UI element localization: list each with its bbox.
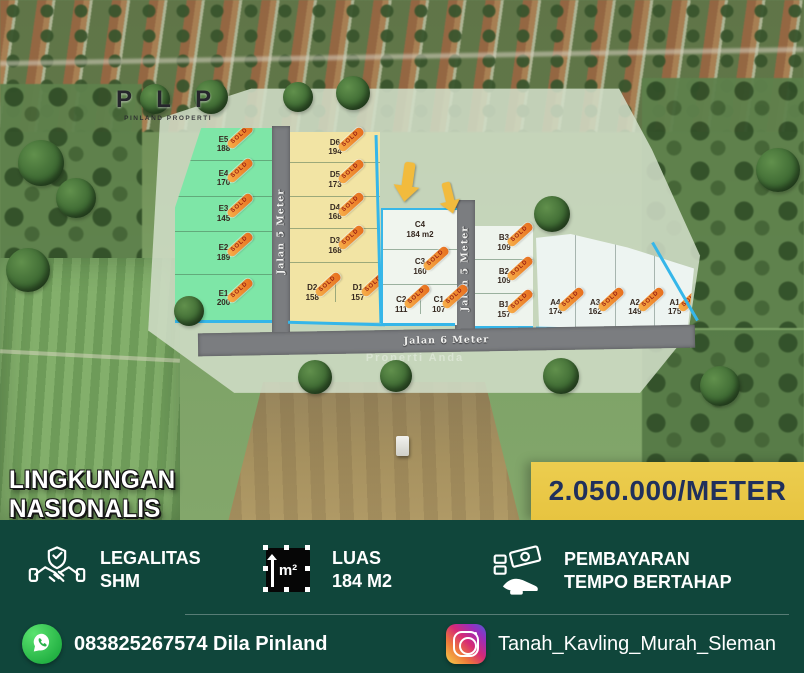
instagram-contact: Tanah_Kavling_Murah_Sleman	[446, 624, 776, 664]
feature-line: LUAS	[332, 547, 392, 570]
sold-badge: SOLD	[337, 224, 365, 251]
plot-row-C2-C1: C2 111 SOLD C1 107 SOLD	[383, 285, 457, 325]
plot-D5: D5 173 SOLD	[290, 163, 380, 196]
plot-D1: D1 157 SOLD	[336, 283, 381, 302]
plot-A4: A4 174 SOLD	[536, 234, 576, 330]
headline: LINGKUNGAN NASIONALIS	[9, 466, 329, 524]
tree	[700, 366, 740, 406]
feature-line: TEMPO BERTAHAP	[564, 571, 732, 594]
feature-line: SHM	[100, 570, 201, 593]
plot-D2: D2 158 SOLD	[290, 283, 336, 302]
company-logo: P L P PINLAND PROPERTI	[116, 86, 220, 122]
whatsapp-number: 083825267574 Dila Pinland	[74, 633, 328, 656]
feature-luas: m² LUAS 184 M2	[262, 544, 392, 596]
sold-badge: SOLD	[225, 231, 253, 258]
plot-B2: B2 109 SOLD	[475, 260, 533, 293]
real-estate-flyer: Jalan 5 Meter Jalan 5 Meter E5 188 SOLD …	[0, 0, 804, 673]
logo-subtitle: PINLAND PROPERTI	[116, 115, 220, 122]
road-vertical-right: Jalan 5 Meter	[455, 200, 475, 336]
instagram-icon	[446, 624, 486, 664]
watermark: Properti Anda	[300, 352, 530, 364]
feature-line: 184 M2	[332, 570, 392, 593]
plot-row-D2-D1: D2 158 SOLD D1 157 SOLD	[290, 263, 380, 322]
tree	[6, 248, 50, 292]
price-banner: 2.050.000/METER	[531, 462, 804, 520]
plot-A3: A3 162 SOLD	[576, 234, 616, 330]
tree	[298, 360, 332, 394]
blue-boundary	[381, 323, 455, 326]
feature-pembayaran: PEMBAYARAN TEMPO BERTAHAP	[492, 544, 732, 598]
plot-group-b: B3 109 SOLD B2 109 SOLD B1 157 SOLD	[475, 226, 533, 326]
instagram-handle: Tanah_Kavling_Murah_Sleman	[498, 633, 776, 656]
plot-B1: B1 157 SOLD	[475, 294, 533, 326]
plot-D4: D4 168 SOLD	[290, 197, 380, 229]
tree	[283, 82, 313, 112]
plot-C4: C4 184 m2	[383, 210, 457, 250]
plot-E2: E2 189 SOLD	[175, 232, 272, 275]
road-vertical-left: Jalan 5 Meter	[272, 126, 290, 336]
plot-C3: C3 160 SOLD	[383, 250, 457, 284]
road-label: Jalan 6 Meter	[404, 334, 490, 346]
plot-C2: C2 111 SOLD	[383, 295, 421, 314]
plot-group-c: C4 184 m2 C3 160 SOLD C2 111 SOLD C1 107…	[381, 208, 457, 325]
logo-text: P L P	[116, 86, 220, 114]
road-label: Jalan 5 Meter	[276, 188, 287, 274]
sold-badge: SOLD	[506, 221, 534, 248]
sold-badge: SOLD	[225, 277, 253, 304]
plot-C1: C1 107 SOLD	[421, 295, 458, 314]
feature-legalitas: LEGALITAS SHM	[28, 544, 201, 596]
handshake-icon	[28, 544, 86, 596]
whatsapp-contact: 083825267574 Dila Pinland	[22, 624, 328, 664]
road-label: Jalan 5 Meter	[460, 225, 471, 311]
truck	[396, 436, 409, 456]
plot-D6: D6 194 SOLD	[290, 132, 380, 163]
whatsapp-icon	[22, 624, 62, 664]
price-text: 2.050.000/METER	[549, 475, 787, 507]
sold-badge: SOLD	[225, 192, 253, 219]
tree	[336, 76, 370, 110]
m2-glyph: m²	[279, 562, 297, 579]
plot-B3: B3 109 SOLD	[475, 226, 533, 260]
tree	[756, 148, 800, 192]
plot-id: C4	[415, 220, 425, 230]
tree	[543, 358, 579, 394]
sold-badge: SOLD	[422, 246, 450, 273]
footer-divider	[185, 614, 789, 615]
tree	[174, 296, 204, 326]
sold-badge: SOLD	[225, 157, 253, 184]
arrow-down-icon	[391, 160, 422, 203]
area-icon: m²	[266, 548, 310, 592]
plot-E4: E4 170 SOLD	[175, 161, 272, 196]
tree	[534, 196, 570, 232]
tree	[56, 178, 96, 218]
installment-icon	[492, 544, 550, 598]
feature-line: LEGALITAS	[100, 547, 201, 570]
tree	[380, 360, 412, 392]
plot-D3: D3 168 SOLD	[290, 229, 380, 263]
measure-bar	[271, 556, 274, 587]
plot-E3: E3 145 SOLD	[175, 197, 272, 232]
tree	[18, 140, 64, 186]
plot-area: 184 m2	[406, 230, 433, 240]
feature-line: PEMBAYARAN	[564, 548, 732, 571]
plot-group-d: D6 194 SOLD D5 173 SOLD D4 168 SOLD D3 1…	[290, 132, 380, 322]
